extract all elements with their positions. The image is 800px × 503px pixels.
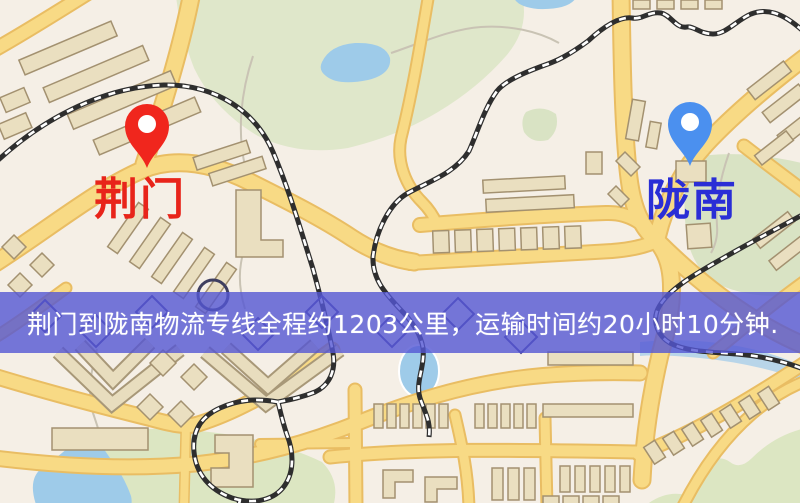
origin-label: 荆门 [94, 174, 186, 225]
map-screenshot: 荆门 陇南 荆门到陇南物流专线全程约1203公里，运输时间约20小时10分钟. [0, 0, 800, 503]
route-info-text: 荆门到陇南物流专线全程约1203公里，运输时间约20小时10分钟. [27, 305, 779, 341]
destination-label: 陇南 [646, 175, 738, 226]
map-image: 荆门 陇南 [0, 0, 800, 503]
route-info-banner: 荆门到陇南物流专线全程约1203公里，运输时间约20小时10分钟. [0, 292, 800, 353]
